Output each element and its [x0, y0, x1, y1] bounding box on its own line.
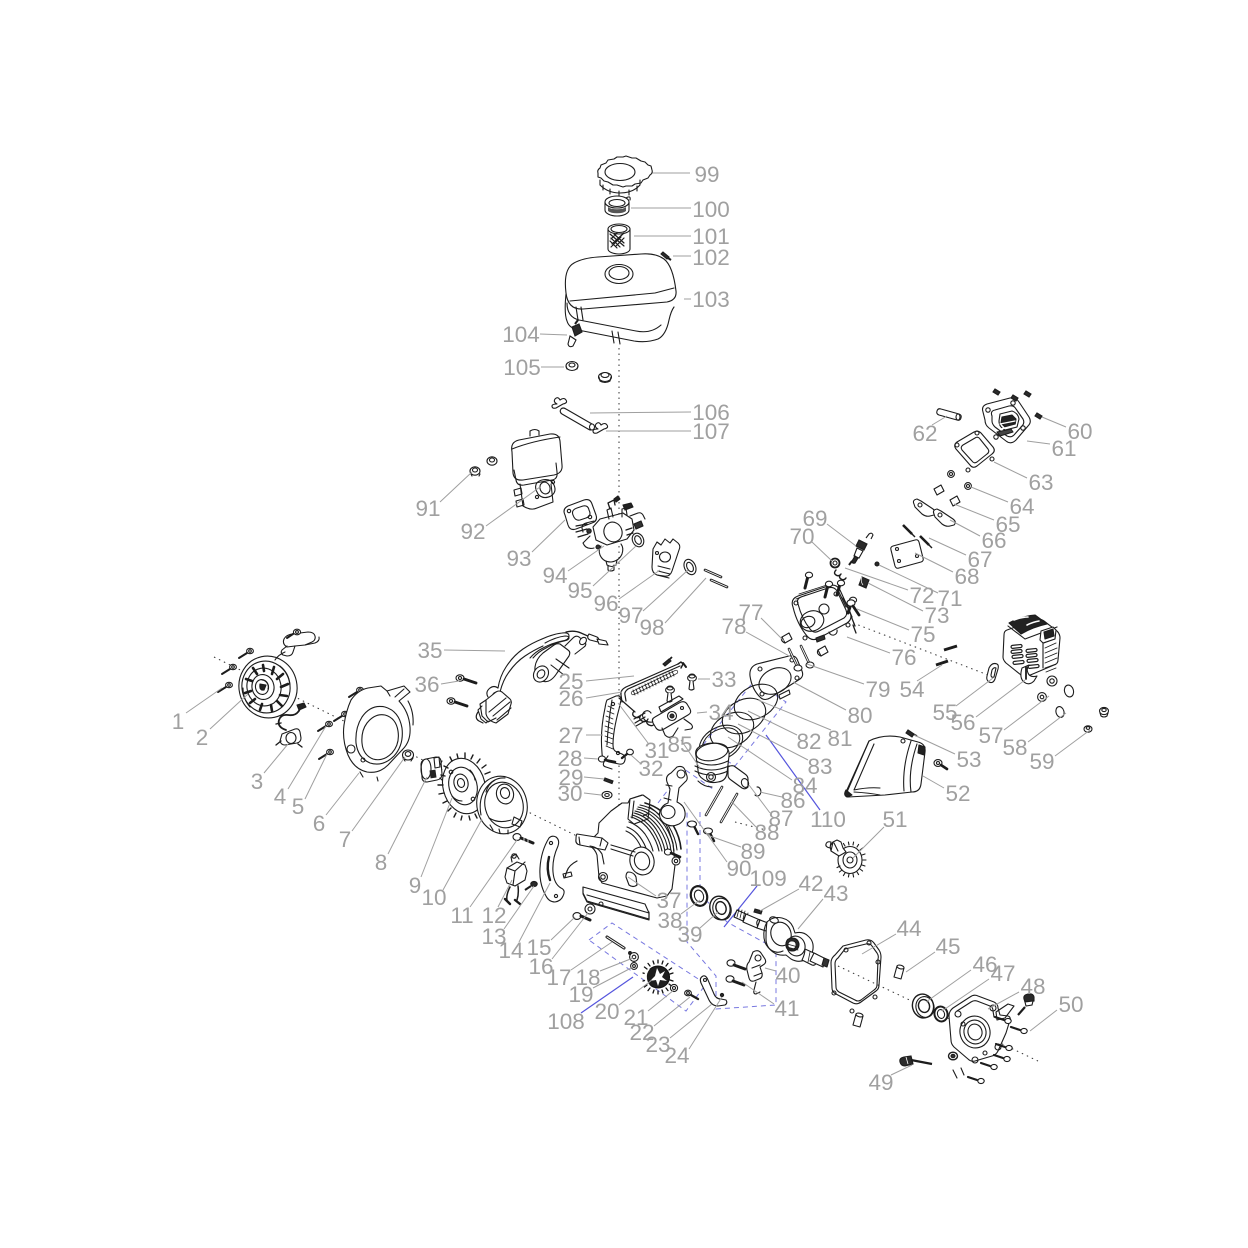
svg-text:43: 43: [823, 881, 848, 906]
svg-text:102: 102: [692, 245, 730, 270]
svg-text:49: 49: [868, 1070, 893, 1095]
svg-text:75: 75: [910, 622, 935, 647]
svg-text:56: 56: [950, 710, 975, 735]
svg-text:35: 35: [417, 638, 442, 663]
svg-text:90: 90: [726, 856, 751, 881]
svg-text:99: 99: [694, 162, 719, 187]
svg-text:6: 6: [313, 811, 326, 836]
svg-text:32: 32: [638, 756, 663, 781]
svg-text:98: 98: [639, 615, 664, 640]
svg-text:92: 92: [460, 519, 485, 544]
svg-text:52: 52: [945, 781, 970, 806]
svg-text:62: 62: [912, 421, 937, 446]
svg-text:63: 63: [1028, 470, 1053, 495]
svg-text:11: 11: [450, 903, 473, 928]
svg-text:48: 48: [1020, 974, 1045, 999]
svg-text:30: 30: [557, 781, 582, 806]
svg-text:108: 108: [547, 1009, 585, 1034]
svg-text:9: 9: [409, 873, 422, 898]
svg-text:41: 41: [774, 996, 799, 1021]
svg-text:47: 47: [990, 961, 1015, 986]
svg-text:81: 81: [827, 726, 852, 751]
svg-text:57: 57: [978, 723, 1003, 748]
svg-text:84: 84: [792, 773, 817, 798]
svg-text:10: 10: [421, 885, 446, 910]
svg-text:109: 109: [749, 866, 787, 891]
svg-text:104: 104: [502, 322, 540, 347]
svg-text:95: 95: [567, 578, 592, 603]
svg-text:76: 76: [891, 645, 916, 670]
svg-text:1: 1: [172, 709, 185, 734]
svg-text:14: 14: [498, 938, 523, 963]
svg-text:51: 51: [882, 807, 907, 832]
svg-text:59: 59: [1029, 749, 1054, 774]
svg-text:79: 79: [865, 677, 890, 702]
svg-text:24: 24: [664, 1043, 689, 1068]
svg-text:58: 58: [1002, 735, 1027, 760]
svg-text:3: 3: [251, 769, 264, 794]
svg-text:110: 110: [810, 807, 846, 832]
svg-text:100: 100: [692, 197, 730, 222]
svg-text:39: 39: [677, 922, 702, 947]
svg-text:42: 42: [798, 871, 823, 896]
svg-text:54: 54: [899, 677, 924, 702]
svg-text:36: 36: [414, 672, 439, 697]
svg-text:4: 4: [274, 784, 287, 809]
svg-text:105: 105: [503, 355, 541, 380]
svg-text:103: 103: [692, 287, 730, 312]
svg-text:93: 93: [506, 546, 531, 571]
svg-text:27: 27: [558, 723, 583, 748]
svg-text:26: 26: [558, 686, 583, 711]
svg-text:40: 40: [775, 963, 800, 988]
svg-text:7: 7: [339, 827, 352, 852]
svg-text:2: 2: [196, 725, 209, 750]
svg-text:20: 20: [594, 999, 619, 1024]
svg-text:70: 70: [789, 524, 814, 549]
svg-text:19: 19: [568, 982, 593, 1007]
svg-text:80: 80: [847, 703, 872, 728]
svg-text:85: 85: [667, 732, 692, 757]
svg-text:5: 5: [292, 794, 305, 819]
svg-text:53: 53: [956, 747, 981, 772]
svg-text:91: 91: [415, 496, 440, 521]
svg-text:34: 34: [708, 700, 733, 725]
svg-text:94: 94: [542, 563, 567, 588]
svg-text:44: 44: [896, 916, 921, 941]
svg-text:45: 45: [935, 934, 960, 959]
svg-text:50: 50: [1058, 992, 1083, 1017]
svg-text:107: 107: [692, 419, 730, 444]
svg-text:61: 61: [1051, 436, 1076, 461]
svg-text:8: 8: [375, 850, 388, 875]
svg-text:96: 96: [593, 591, 618, 616]
svg-text:82: 82: [796, 729, 821, 754]
svg-text:78: 78: [721, 614, 746, 639]
svg-text:33: 33: [711, 667, 736, 692]
